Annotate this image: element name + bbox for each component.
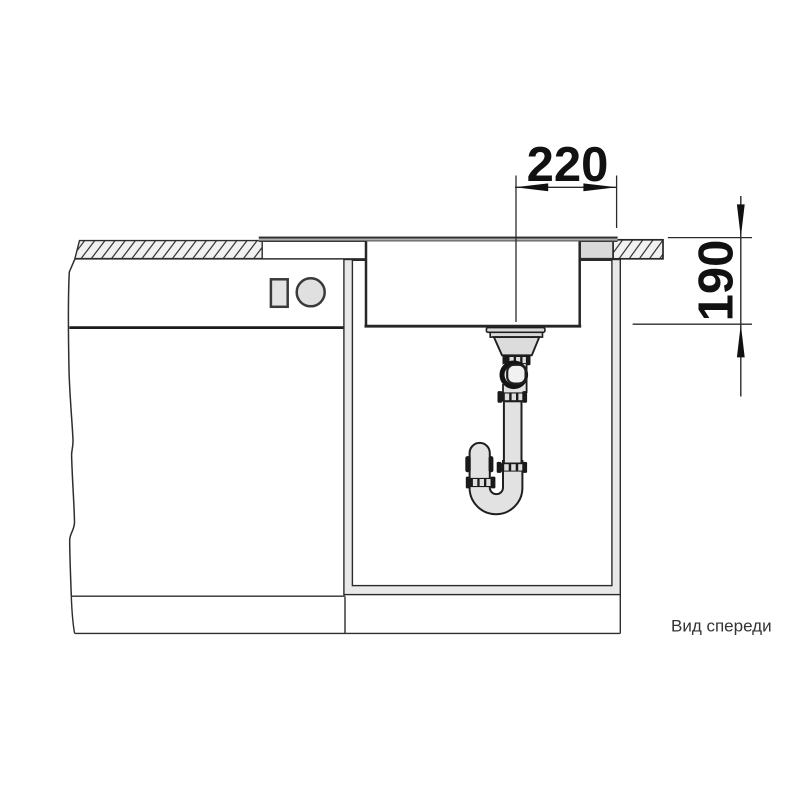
svg-text:Вид спереди: Вид спереди [671,617,772,636]
svg-text:220: 220 [527,138,609,192]
svg-text:190: 190 [690,240,744,322]
